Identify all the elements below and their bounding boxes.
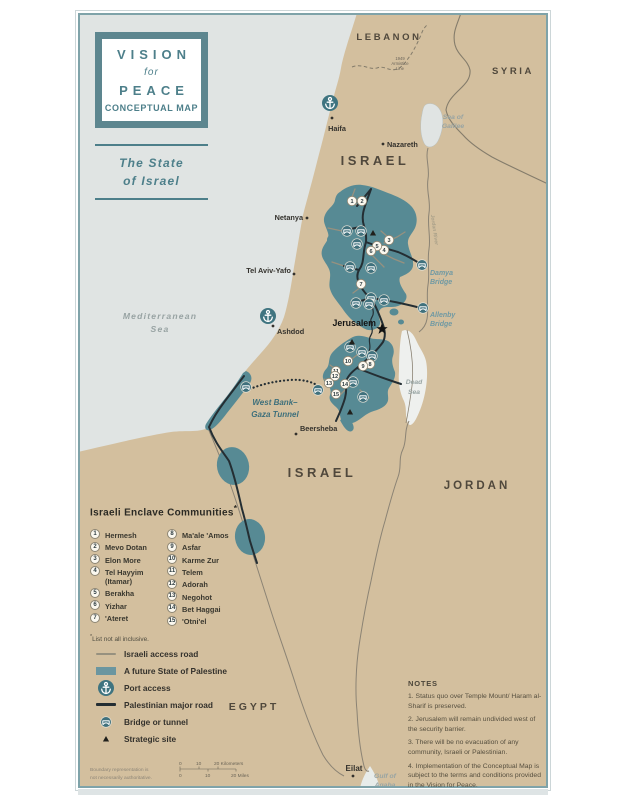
- city-label-beersheba: Beersheba: [300, 424, 338, 433]
- enclave-name: Telem: [182, 566, 203, 577]
- palestinian-major-road-icon: [93, 703, 119, 706]
- notes-title: NOTES: [408, 679, 542, 688]
- enclave-number-badge: 15: [167, 616, 177, 626]
- strategic-site-icon: [93, 735, 119, 743]
- city-dot: [272, 325, 275, 328]
- notes-panel: NOTES 1. Status quo over Temple Mount/ H…: [408, 679, 542, 795]
- future-state-of-palestine-swatch: [93, 667, 119, 675]
- enclave-marker-number: 2: [360, 199, 363, 205]
- enclave-legend-columns: 1 Hermesh 2 Mevo Dotan 3 Elon More: [90, 529, 268, 628]
- bridge-or-tunnel-icon: [345, 262, 356, 273]
- city-label-eilat: Eilat: [346, 764, 363, 773]
- enclave-name: Karme Zur: [182, 554, 219, 565]
- legend-label: Port access: [124, 683, 171, 693]
- city-dot: [382, 143, 385, 146]
- enclave-number-badge: 3: [90, 554, 100, 564]
- bridge-or-tunnel-icon: [342, 226, 353, 237]
- enclave-name: Hermesh: [105, 529, 137, 540]
- city-dot: [293, 273, 296, 276]
- enclave-name: Berakha: [105, 588, 134, 599]
- subtitle-line1: The State: [95, 154, 208, 172]
- city-dot: [295, 433, 298, 436]
- enclave-legend-item: 12 Adorah: [167, 579, 229, 590]
- port-access-icon: [260, 308, 276, 324]
- legend-row-future-state-of-palestine: A future State of Palestine: [93, 662, 227, 679]
- enclave-marker-number: 6: [369, 249, 372, 255]
- enclave-name: Yizhar: [105, 600, 127, 611]
- enclave-marker-number: 5: [375, 244, 378, 250]
- bridge-or-tunnel-icon: [417, 260, 428, 271]
- enclave-number-badge: 1: [90, 529, 100, 539]
- legend-row-port-access: Port access: [93, 679, 227, 696]
- legend-row-palestinian-major-road: Palestinian major road: [93, 696, 227, 713]
- bridge-or-tunnel-icon: [418, 303, 429, 314]
- enclave-legend-item: 5 Berakha: [90, 588, 167, 599]
- scale-mi-20: 20 Miles: [231, 773, 249, 779]
- bridge-or-tunnel-icon: [364, 299, 375, 310]
- enclave-legend-item: 7 'Ateret: [90, 613, 167, 624]
- city-dot: [306, 217, 309, 220]
- enclave-marker-number: 7: [359, 282, 362, 288]
- country-label-jordan: JORDAN: [444, 480, 511, 492]
- bridge-or-tunnel-icon: [352, 239, 363, 250]
- legend-label: Bridge or tunnel: [124, 717, 188, 727]
- enclave-number-badge: 12: [167, 579, 177, 589]
- enclave-legend-title: Israeli Enclave Communities*: [90, 503, 268, 518]
- legend-label: Palestinian major road: [124, 700, 213, 710]
- enclave-name: Adorah: [182, 579, 208, 590]
- legend-row-israeli-access-road: Israeli access road: [93, 645, 227, 662]
- enclave-marker-number: 1: [350, 199, 353, 205]
- country-label-israel: ISRAEL: [341, 153, 410, 168]
- enclave-number-badge: 2: [90, 542, 100, 552]
- enclave-number-badge: 9: [167, 542, 177, 552]
- subtitle-line2: of Israel: [95, 172, 208, 190]
- city-dot: [331, 117, 334, 120]
- enclave-number-badge: 10: [167, 554, 177, 564]
- enclave-number-badge: 4: [90, 566, 100, 576]
- enclave-name: Negohot: [182, 591, 212, 602]
- enclave-name: 'Ateret: [105, 613, 128, 624]
- bridge-or-tunnel-icon: [313, 385, 324, 396]
- enclave-legend-item: 10 Karme Zur: [167, 554, 229, 565]
- enclave-legend-col2: 8 Ma'ale 'Amos 9 Asfar 10 Karme Zur: [167, 529, 229, 628]
- scale-mi-0: 0: [179, 773, 182, 779]
- bridge-or-tunnel-icon: [356, 226, 367, 237]
- scale-km-20: 20 Kilometers: [214, 761, 244, 767]
- enclave-number-badge: 7: [90, 613, 100, 623]
- enclave-number-badge: 13: [167, 591, 177, 601]
- bridge-or-tunnel-icon: [93, 715, 119, 729]
- enclave-number-badge: 14: [167, 603, 177, 613]
- title-peace: PEACE: [114, 83, 189, 98]
- israeli-access-road-icon: [93, 653, 119, 655]
- country-label-egypt: EGYPT: [229, 701, 280, 713]
- country-label-syria: SYRIA: [492, 66, 534, 77]
- enclave-name: Ma'ale 'Amos: [182, 529, 229, 540]
- footnote-text: List not all inclusive.: [92, 636, 149, 643]
- enclave-legend-item: 9 Asfar: [167, 542, 229, 553]
- notes-list: 1. Status quo over Temple Mount/ Haram a…: [408, 692, 542, 791]
- city-label-nazareth: Nazareth: [387, 140, 418, 149]
- enclave-marker-number: 13: [326, 381, 332, 387]
- disclaimer-line1: Boundary representation is: [90, 767, 190, 775]
- map-symbols-legend: Israeli access road A future State of Pa…: [93, 645, 227, 747]
- enclave-number-badge: 11: [167, 566, 177, 576]
- country-label-israel: ISRAEL: [288, 465, 357, 480]
- enclave-legend-item: 1 Hermesh: [90, 529, 167, 540]
- legend-label: A future State of Palestine: [124, 666, 227, 676]
- bridge-or-tunnel-icon: [379, 295, 390, 306]
- bridge-or-tunnel-icon: [366, 263, 377, 274]
- scale-mi-10: 10: [205, 773, 211, 779]
- enclave-marker-number: 8: [368, 362, 371, 368]
- enclave-legend-item: 2 Mevo Dotan: [90, 542, 167, 553]
- enclave-name: Asfar: [182, 542, 201, 553]
- legend-label: Strategic site: [124, 734, 176, 744]
- city-label-jerusalem: Jerusalem: [332, 318, 376, 328]
- enclave-communities-legend: Israeli Enclave Communities* 1 Hermesh 2…: [90, 503, 268, 643]
- title-vision: VISION: [112, 47, 191, 62]
- enclave-legend-item: 14 Bet Haggai: [167, 603, 229, 614]
- disclaimer-line2: not necessarily authoritative.: [90, 775, 190, 783]
- enclave-marker-number: 14: [342, 382, 349, 388]
- legend-label: Israeli access road: [124, 649, 198, 659]
- scale-km-0: 0: [179, 761, 182, 767]
- enclave-name: 'Otni'el: [182, 616, 206, 627]
- vision-for-peace-map-page: 123456789101112131415 LEBANONSYRIAISRAEL…: [0, 0, 623, 801]
- bridge-or-tunnel-icon: [357, 347, 368, 358]
- enclave-marker-number: 3: [387, 238, 390, 244]
- city-label-haifa: Haifa: [328, 124, 347, 133]
- enclave-legend-col1: 1 Hermesh 2 Mevo Dotan 3 Elon More: [90, 529, 167, 628]
- port-access-icon: [93, 679, 119, 697]
- scale-km-10: 10: [196, 761, 202, 767]
- enclave-legend-item: 15 'Otni'el: [167, 616, 229, 627]
- enclave-name: Mevo Dotan: [105, 542, 147, 553]
- legend-row-strategic-site: Strategic site: [93, 730, 227, 747]
- city-dot: [352, 775, 355, 778]
- enclave-legend-title-text: Israeli Enclave Communities: [90, 507, 234, 518]
- enclave-number-badge: 5: [90, 588, 100, 598]
- title-for: for: [144, 67, 159, 78]
- enclave-legend-item: 13 Negohot: [167, 591, 229, 602]
- enclave-marker-number: 12: [332, 374, 338, 380]
- enclave-name: Bet Haggai: [182, 603, 221, 614]
- enclave-marker-number: 15: [333, 392, 339, 398]
- enclave-legend-asterisk: *: [234, 503, 238, 513]
- enclave-name: Elon More: [105, 554, 141, 565]
- enclave-number-badge: 6: [90, 600, 100, 610]
- enclave-legend-item: 8 Ma'ale 'Amos: [167, 529, 229, 540]
- enclave-legend-footnote: *List not all inclusive.: [90, 634, 268, 643]
- enclave-legend-item: 11 Telem: [167, 566, 229, 577]
- city-label-tel-aviv-yafo: Tel Aviv-Yafo: [246, 266, 291, 275]
- port-access-icon: [322, 95, 338, 111]
- enclave-marker-number: 10: [345, 359, 351, 365]
- enclave-legend-item: 6 Yizhar: [90, 600, 167, 611]
- enclave-name: Tel Hayyim(Itamar): [105, 566, 143, 586]
- bridge-or-tunnel-icon: [241, 382, 252, 393]
- note-item: 3. There will be no evacuation of any co…: [408, 738, 542, 758]
- city-label-ashdod: Ashdod: [277, 327, 304, 336]
- bridge-or-tunnel-icon: [358, 392, 369, 403]
- title-conceptual-map: CONCEPTUAL MAP: [105, 103, 198, 113]
- subtitle-state-of-israel: The State of Israel: [95, 144, 208, 200]
- note-item: 2. Jerusalem will remain undivided west …: [408, 715, 542, 735]
- enclave-legend-item: 4 Tel Hayyim(Itamar): [90, 566, 167, 586]
- country-label-lebanon: LEBANON: [356, 32, 421, 43]
- enclave-number-badge: 8: [167, 529, 177, 539]
- enclave-legend-item: 3 Elon More: [90, 554, 167, 565]
- boundary-disclaimer: Boundary representation is not necessari…: [90, 767, 190, 783]
- note-item: 1. Status quo over Temple Mount/ Haram a…: [408, 692, 542, 712]
- title-box: VISION for PEACE CONCEPTUAL MAP: [95, 32, 208, 128]
- scale-bar: 0 10 20 Kilometers 0 10 20 Miles: [178, 760, 298, 787]
- enclave-marker-number: 9: [361, 364, 364, 370]
- city-label-netanya: Netanya: [275, 213, 304, 222]
- legend-row-bridge-or-tunnel: Bridge or tunnel: [93, 713, 227, 730]
- note-item: 4. Implementation of the Conceptual Map …: [408, 762, 542, 792]
- bridge-or-tunnel-icon: [351, 298, 362, 309]
